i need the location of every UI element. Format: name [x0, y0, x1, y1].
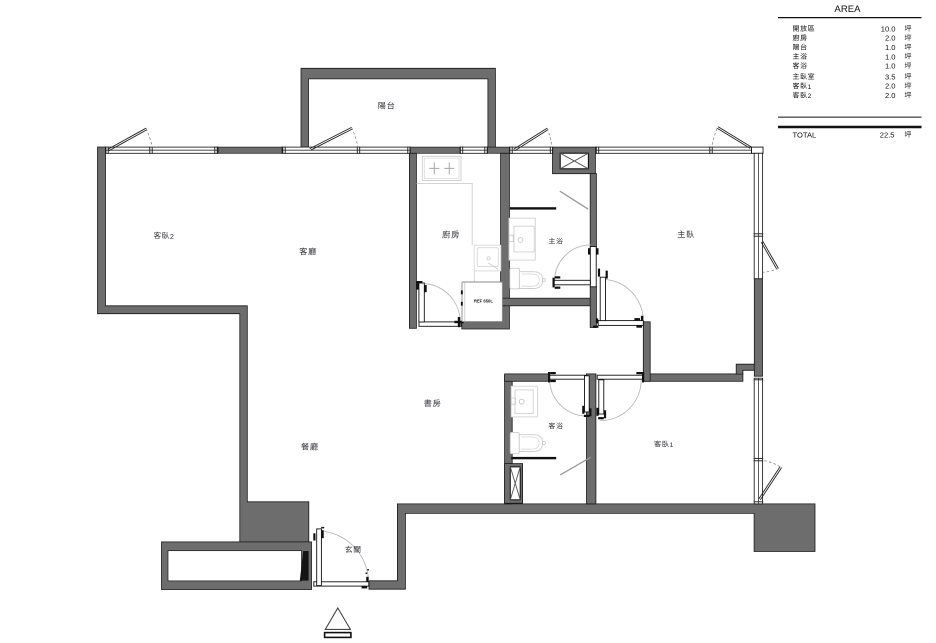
- svg-text:2.0: 2.0: [885, 82, 896, 91]
- svg-text:2: 2: [808, 93, 812, 100]
- svg-text:2.0: 2.0: [885, 34, 896, 43]
- svg-text:22.5: 22.5: [880, 130, 895, 139]
- svg-text:REF 650L: REF 650L: [474, 299, 494, 304]
- svg-text:1.0: 1.0: [885, 52, 896, 61]
- svg-text:2.0: 2.0: [885, 91, 896, 100]
- svg-text:1.0: 1.0: [885, 43, 896, 52]
- svg-text:1: 1: [808, 84, 812, 91]
- svg-text:AREA: AREA: [834, 4, 861, 15]
- svg-text:3.5: 3.5: [885, 72, 896, 81]
- svg-text:2: 2: [170, 232, 174, 241]
- svg-text:1.0: 1.0: [885, 62, 896, 71]
- svg-text:TOTAL: TOTAL: [793, 130, 817, 139]
- svg-text:10.0: 10.0: [881, 24, 896, 33]
- svg-text:1: 1: [670, 442, 674, 449]
